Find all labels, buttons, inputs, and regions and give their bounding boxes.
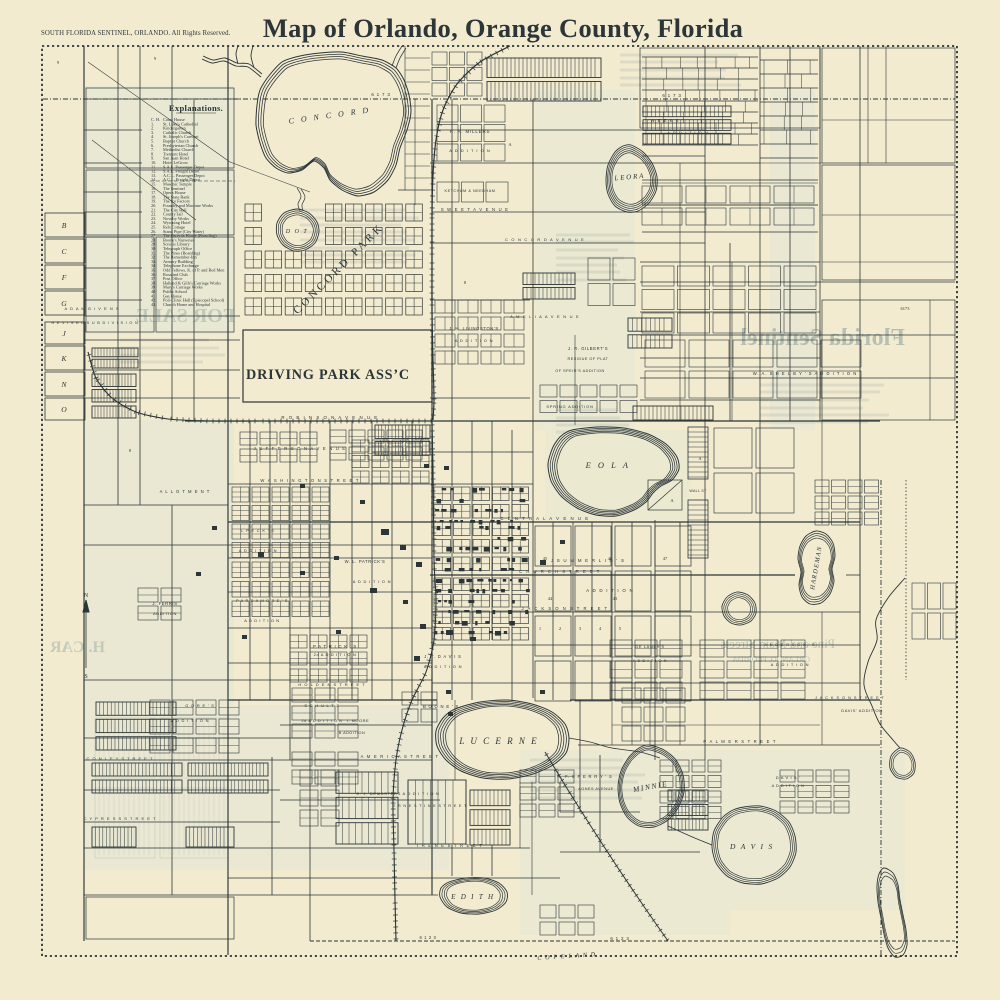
svg-text:46: 46 [608,556,613,561]
svg-text:P A L M E R S T R E E T: P A L M E R S T R E E T [703,739,776,744]
svg-text:A N D E R S O N ' S: A N D E R S O N ' S [764,642,815,647]
svg-text:A D D I T I O N: A D D I T I O N [353,579,392,584]
svg-text:47: 47 [663,556,668,561]
svg-text:1: 1 [539,626,541,631]
svg-text:A D D I T I O N: A D D I T I O N [633,659,667,663]
svg-text:W. A. S H E L B Y ' S A: W. A. S H E L B Y ' S A D D I T I O N [753,371,858,376]
svg-text:A D D I T I O N: A D D I T I O N [239,548,278,553]
svg-text:A D D I T I O N: A D D I T I O N [772,784,805,788]
svg-text:J. T. D A V I S: J. T. D A V I S [424,654,462,659]
svg-text:2: 2 [559,626,561,631]
svg-text:W E E K S: W E E K S [651,118,680,123]
svg-text:J S U M M E R L I N ' S: J S U M M E R L I N ' S [551,558,625,563]
svg-text:B O O N E ' S: B O O N E ' S [423,704,459,709]
svg-text:WALL ST: WALL ST [689,489,707,493]
svg-text:E R N E S T I N E S T R E E: E R N E S T I N E S T R E E T [393,804,467,808]
svg-text:N: N [60,380,67,389]
svg-text:R. A. MILLERS: R. A. MILLERS [450,129,491,134]
svg-text:D O T: D O T [285,229,309,235]
svg-text:O: O [61,405,67,414]
svg-text:L P E C K ' S: L P E C K ' S [241,528,274,533]
svg-text:6173: 6173 [901,306,911,311]
svg-text:SPRING ADDITION: SPRING ADDITION [546,404,593,409]
svg-text:A D D I T I O N: A D D I T I O N [244,618,280,623]
svg-text:J A C K S O N S T R E E T: J A C K S O N S T R E E T [521,606,608,611]
svg-text:F: F [61,273,67,282]
svg-text:DAVIS' ADDITION: DAVIS' ADDITION [841,708,882,713]
svg-text:6 1 7 3: 6 1 7 3 [662,93,681,98]
svg-text:E D I T H: E D I T H [450,893,495,901]
svg-text:A D D I T I O N: A D D I T I O N [771,662,810,667]
svg-text:N: N [84,593,89,599]
svg-text:Map of Orlando, Orange County,: Map of Orlando, Orange County, Florida [263,13,743,43]
svg-text:A D A M G I V E N S: A D A M G I V E N S [64,306,119,311]
svg-text:E O L A: E O L A [585,460,631,470]
svg-text:C H U R C H S T R E E T: C H U R C H S T R E E T [519,569,601,574]
svg-text:OF SPEIR'S ADDITION: OF SPEIR'S ADDITION [555,369,604,373]
svg-text:KETCHUM & NEEDHAM: KETCHUM & NEEDHAM [445,189,496,193]
svg-text:S C H U L T Z: S C H U L T Z [304,703,339,708]
svg-text:A D D I T I O N: A D D I T I O N [424,664,463,669]
svg-text:Florida Sentinel: Florida Sentinel [740,325,905,351]
svg-text:A D D I T I O N: A D D I T I O N [449,148,491,153]
svg-text:S: S [84,674,87,680]
svg-text:W. L. PATRICK'S: W. L. PATRICK'S [345,559,386,564]
svg-text:P A R R A M O R E ' S: P A R R A M O R E ' S [236,598,288,603]
svg-text:A M E R I C A S T R E E T: A M E R I C A S T R E E T [361,754,440,759]
svg-text:A M E L I A A V E N U E: A M E L I A A V E N U E [510,314,580,319]
svg-text:D A V I S: D A V I S [729,842,774,851]
svg-text:J. FERRIS: J. FERRIS [152,601,177,606]
svg-text:ADDITION: ADDITION [153,611,177,616]
svg-text:C E N T R A L A V E N U E: C E N T R A L A V E N U E [500,516,589,521]
svg-text:43.: 43. [151,302,156,307]
svg-text:R O B I N S O N A V E N U: R O B I N S O N A V E N U E [281,415,378,420]
svg-text:J. R. GILBERT'S: J. R. GILBERT'S [568,346,608,351]
svg-text:44: 44 [548,596,553,601]
svg-text:G O R E ' S: G O R E ' S [185,703,215,708]
svg-text:J A C K S O N S T R E E T: J A C K S O N S T R E E T [815,696,885,700]
svg-text:2d A D D I T I O N: 2d A D D I T I O N [301,719,342,723]
svg-text:S W E E T A V E N U E: S W E E T A V E N U E [441,207,509,212]
svg-text:L U C E R N E: L U C E R N E [458,736,538,746]
svg-text:DRIVING PARK ASS’C: DRIVING PARK ASS’C [246,367,410,383]
svg-text:J E F F E R S O N A V E N U: J E F F E R S O N A V E N U E [254,446,347,451]
svg-text:RESIDUE OF PLAT: RESIDUE OF PLAT [568,357,609,361]
svg-text:2d A D D I T I O N: 2d A D D I T I O N [314,652,357,657]
svg-text:B: B [62,221,67,230]
svg-text:A D D I T I O N: A D D I T I O N [171,718,210,723]
svg-text:A D D I T I O N: A D D I T I O N [586,588,634,593]
svg-text:W A S H I N G T O N S T R E: W A S H I N G T O N S T R E E T [260,478,359,483]
svg-text:C Y P R E S S S T R E E T: C Y P R E S S S T R E E T [84,816,157,821]
svg-text:I R E N E S T R E E T: I R E N E S T R E E T [417,843,483,848]
svg-text:C O N L E Y S T R E E T: C O N L E Y S T R E E T [87,756,154,761]
svg-text:A L L O T M E N T: A L L O T M E N T [160,489,211,494]
svg-text:SOUTH FLORIDA SENTINEL, ORLAND: SOUTH FLORIDA SENTINEL, ORLANDO. All Rig… [41,30,231,37]
svg-text:J. H. LIVINGSTON'S: J. H. LIVINGSTON'S [449,326,498,331]
svg-text:E. J. DEMASTERS A D D I T I: E. J. DEMASTERS A D D I T I O N [356,791,439,796]
svg-text:H. CAR: H. CAR [49,639,105,656]
svg-text:I. MOORE: I. MOORE [347,718,369,723]
svg-text:6 1 2 3: 6 1 2 3 [419,935,436,940]
svg-text:D A V I S ': D A V I S ' [776,775,800,780]
svg-text:DE LANEY'S: DE LANEY'S [635,644,664,649]
svg-text:6 1 7 3: 6 1 7 3 [371,92,390,97]
svg-text:P A T R I C K ' S: P A T R I C K ' S [313,644,357,649]
svg-text:A D D I T I O N: A D D I T I O N [667,130,709,135]
svg-text:43: 43 [613,596,618,601]
svg-text:AGNES AVENUE: AGNES AVENUE [578,787,613,791]
svg-text:X L HYERS: X L HYERS [407,437,429,441]
svg-text:6 1 2 3: 6 1 2 3 [610,936,629,941]
svg-text:A D D I T I O N: A D D I T I O N [455,338,494,343]
svg-text:C O N C O R D A V E N U E: C O N C O R D A V E N U E [505,237,585,242]
svg-text:45: 45 [543,556,548,561]
svg-text:Church Home and Hospital: Church Home and Hospital [163,302,211,307]
svg-text:B ADDITION: B ADDITION [339,731,366,735]
svg-text:H O L D E N S T R E E T: H O L D E N S T R E E T [298,682,365,687]
svg-text:R E V I S E D S U B D I V: R E V I S E D S U B D I V I S I O N [51,321,138,325]
svg-text:K: K [60,354,67,363]
svg-text:Explanations.: Explanations. [169,103,223,113]
svg-text:R. F. S P E R R Y ' S: R. F. S P E R R Y ' S [557,774,612,779]
